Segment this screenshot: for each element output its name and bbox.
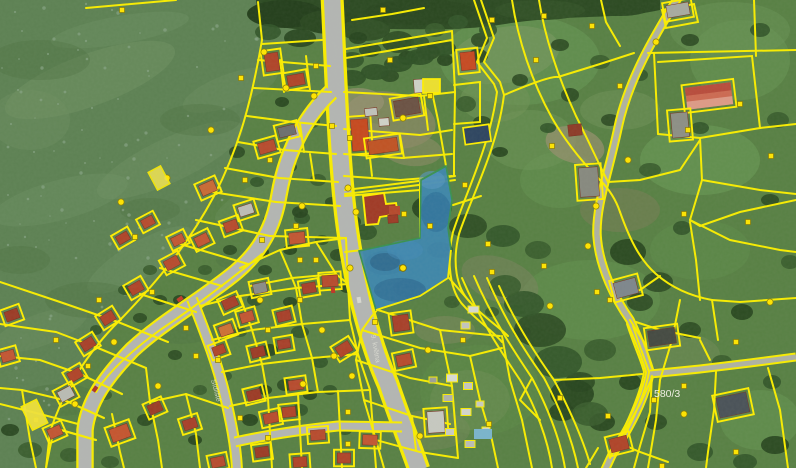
svg-text:580/3: 580/3 [654,388,680,400]
